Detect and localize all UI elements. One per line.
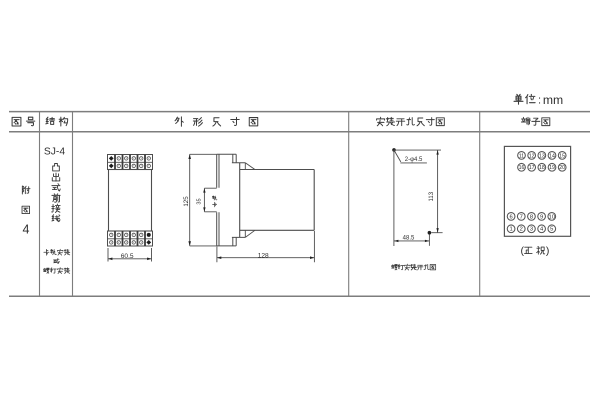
svg-text:4: 4 <box>23 223 30 237</box>
svg-text:2: 2 <box>520 227 523 233</box>
svg-text:2-φ4.5: 2-φ4.5 <box>405 157 423 163</box>
svg-text:18: 18 <box>539 165 545 171</box>
svg-text:128: 128 <box>258 253 269 260</box>
svg-text:12: 12 <box>529 153 535 159</box>
svg-text:35: 35 <box>197 198 203 204</box>
svg-text:mm: mm <box>543 93 563 107</box>
svg-text:13: 13 <box>539 153 545 159</box>
svg-text:14: 14 <box>549 153 555 159</box>
svg-text:(: ( <box>521 245 525 257</box>
svg-text:16: 16 <box>519 165 525 171</box>
svg-text:8: 8 <box>530 214 533 220</box>
svg-text:3: 3 <box>530 227 533 233</box>
svg-text:11: 11 <box>519 153 524 159</box>
svg-text:6: 6 <box>509 214 512 220</box>
svg-text:5: 5 <box>550 227 553 233</box>
svg-text:SJ-4: SJ-4 <box>44 146 65 157</box>
svg-text:10: 10 <box>549 214 555 220</box>
svg-text:19: 19 <box>549 165 555 171</box>
svg-text:7: 7 <box>520 214 523 220</box>
svg-text:1: 1 <box>509 227 512 233</box>
svg-text:60.5: 60.5 <box>121 253 134 260</box>
svg-text:): ) <box>546 245 550 257</box>
svg-text:113: 113 <box>429 191 435 201</box>
svg-text:20: 20 <box>559 165 565 171</box>
svg-text:125: 125 <box>183 196 190 207</box>
svg-text:48.5: 48.5 <box>403 235 415 241</box>
svg-text::: : <box>538 95 541 107</box>
svg-text:15: 15 <box>559 153 565 159</box>
svg-text:9: 9 <box>540 214 543 220</box>
svg-text:17: 17 <box>529 165 535 171</box>
